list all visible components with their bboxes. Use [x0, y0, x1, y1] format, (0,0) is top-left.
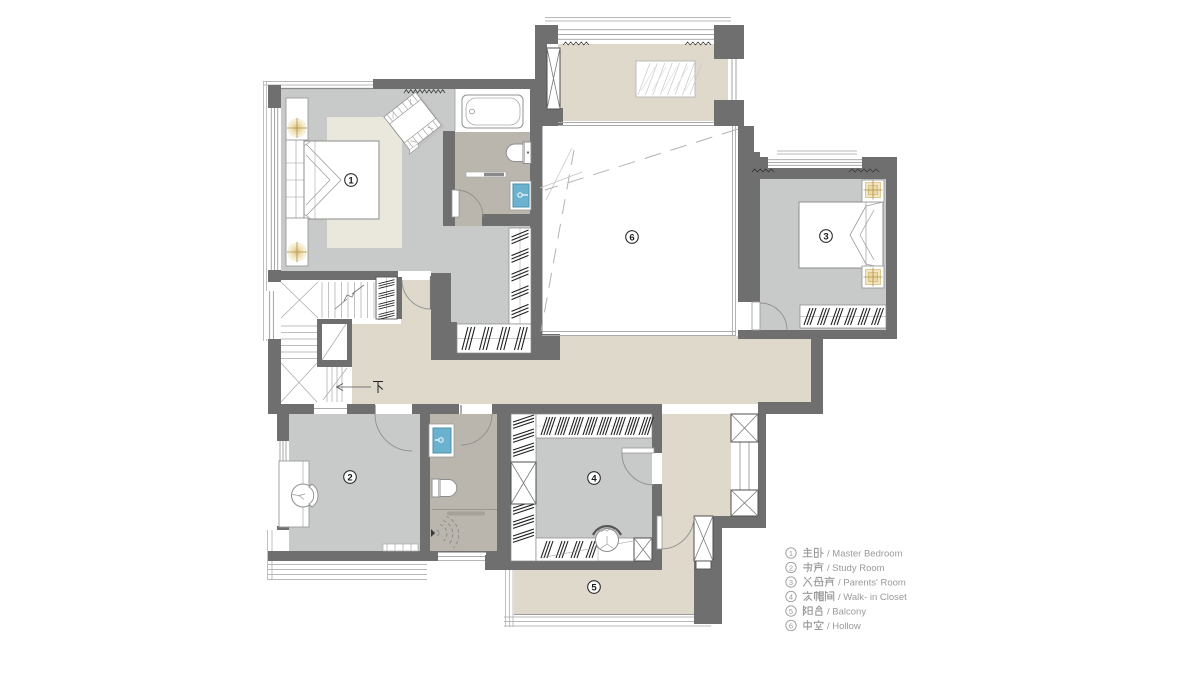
svg-text:3: 3 [823, 231, 828, 242]
svg-text:5: 5 [789, 607, 793, 616]
svg-text:/ Parents' Room: / Parents' Room [838, 577, 906, 588]
svg-text:/ Balcony: / Balcony [827, 606, 866, 617]
svg-text:/ Study Room: / Study Room [827, 563, 885, 574]
svg-text:6: 6 [789, 621, 793, 630]
svg-text:5: 5 [591, 582, 597, 593]
svg-text:4: 4 [591, 473, 597, 484]
svg-text:2: 2 [347, 472, 352, 483]
svg-text:3: 3 [789, 578, 793, 587]
svg-text:/ Walk- in Closet: / Walk- in Closet [838, 592, 907, 603]
svg-text:/ Master Bedroom: / Master Bedroom [827, 548, 903, 559]
svg-text:2: 2 [789, 563, 793, 572]
svg-text:4: 4 [789, 592, 793, 601]
svg-text:/ Hollow: / Hollow [827, 621, 861, 632]
svg-text:1: 1 [789, 549, 793, 558]
svg-text:1: 1 [348, 175, 354, 186]
svg-text:6: 6 [629, 232, 634, 243]
